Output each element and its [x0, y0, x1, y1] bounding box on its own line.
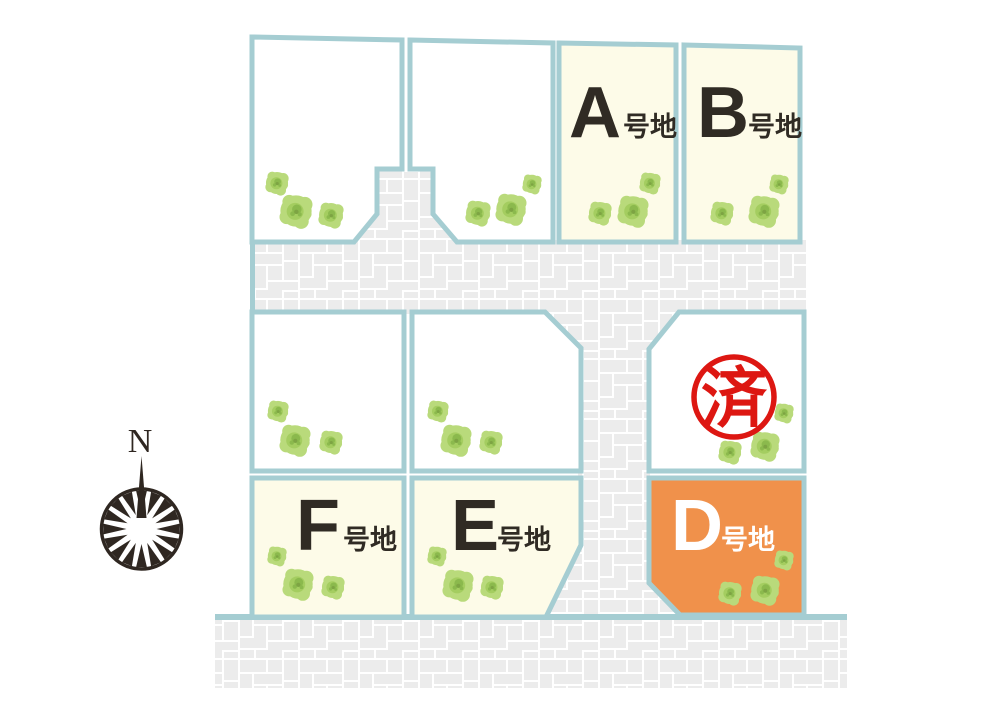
road-edge-line-left [250, 240, 255, 316]
compass-north-label: N [128, 423, 153, 460]
compass-rose-icon: N [102, 423, 182, 569]
road-bottom [215, 616, 847, 688]
lot-e-letter: E [451, 486, 499, 566]
lot-a-suffix: 号地 [623, 112, 677, 142]
road-vertical [578, 240, 650, 621]
sold-stamp-text: 済 [701, 361, 768, 435]
lot-d-letter: D [671, 486, 723, 566]
lot-e-suffix: 号地 [497, 525, 551, 555]
site-plan: A 号地 B 号地 F 号地 E 号地 D 号地 済 N [0, 0, 983, 724]
lot-f-letter: F [296, 486, 340, 566]
lot-b-letter: B [697, 73, 749, 153]
lot-d-suffix: 号地 [721, 525, 775, 555]
lot-f-suffix: 号地 [343, 525, 397, 555]
road-horizontal [250, 240, 806, 314]
lot-b-suffix: 号地 [748, 112, 802, 142]
compass-needle [137, 456, 147, 518]
site-plan-canvas: A 号地 B 号地 F 号地 E 号地 D 号地 済 N [0, 0, 983, 724]
sold-stamp: 済 [694, 357, 774, 437]
lot-a-letter: A [569, 73, 621, 153]
